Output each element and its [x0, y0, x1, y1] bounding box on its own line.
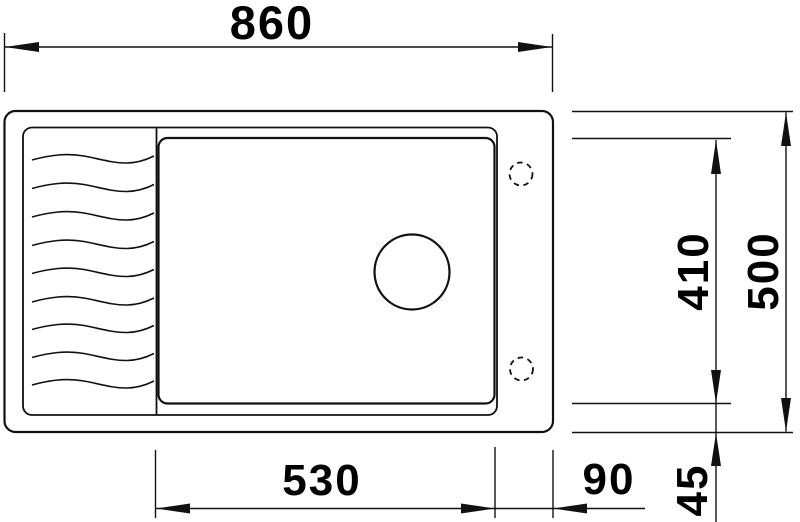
ripple-line — [32, 155, 154, 163]
ripple-line — [32, 268, 154, 276]
arrowhead-up — [781, 113, 791, 147]
ripple-line — [32, 297, 154, 305]
arrowhead-left — [156, 504, 190, 514]
arrowhead-right — [518, 42, 552, 52]
dimension-value-45: 45 — [668, 464, 717, 517]
dimension-530-90: 530 90 — [156, 447, 646, 518]
ripple-line — [32, 324, 154, 332]
arrowhead-left — [553, 504, 587, 514]
arrowhead-down — [711, 370, 721, 404]
ripple-line — [32, 352, 154, 360]
drawing-canvas: 860 500 410 45 530 90 — [0, 0, 800, 522]
dimension-value-530: 530 — [282, 456, 361, 505]
drain-hole — [375, 235, 450, 310]
dimension-45: 45 — [668, 433, 721, 516]
sink-dimension-drawing: 860 500 410 45 530 90 — [0, 0, 800, 522]
tap-hole-bottom — [510, 358, 533, 381]
ripple-line — [32, 380, 154, 388]
dimension-value-500: 500 — [739, 231, 788, 310]
arrowhead-up — [711, 433, 721, 466]
drainboard-ripples — [32, 155, 154, 388]
dimension-value-90: 90 — [583, 455, 636, 504]
arrowhead-left — [5, 42, 39, 52]
sink-outer-edge — [5, 111, 554, 432]
dimension-value-860: 860 — [230, 0, 314, 49]
arrowhead-down — [781, 398, 791, 432]
bowl-outline — [159, 138, 495, 404]
tap-hole-top — [510, 163, 533, 186]
ripple-line — [32, 183, 154, 191]
ripple-line — [32, 212, 154, 220]
arrowhead-up — [711, 140, 721, 174]
dimension-value-410: 410 — [669, 231, 718, 310]
dimension-860: 860 — [5, 0, 553, 92]
ripple-line — [32, 240, 154, 248]
arrowhead-right — [461, 504, 495, 514]
sink-body — [5, 111, 554, 432]
